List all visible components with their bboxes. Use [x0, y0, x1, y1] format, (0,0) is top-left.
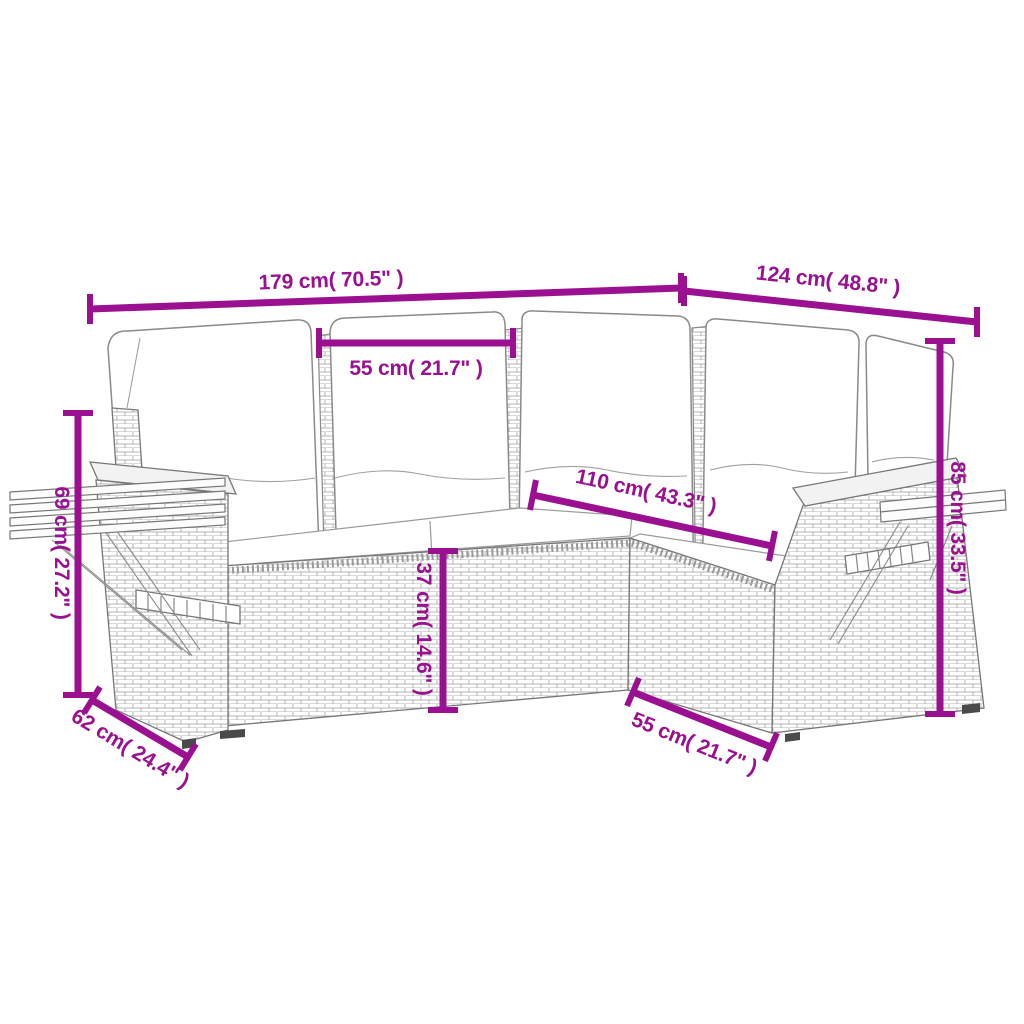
foot: [785, 732, 800, 742]
sofa-base: [222, 538, 775, 733]
dim-label-arm-height: 69 cm( 27.2" ): [49, 486, 73, 619]
dim-label-back-height: 85 cm( 33.5" ): [945, 461, 969, 594]
dimension-diagram: 179 cm( 70.5" ) 124 cm( 48.8" ) 55 cm( 2…: [0, 0, 1024, 1024]
left-arm-post: [112, 408, 142, 470]
dim-label-seat-height: 37 cm( 14.6" ): [411, 562, 435, 695]
dim-label-total-width: 179 cm( 70.5" ): [258, 266, 403, 295]
dim-label-seat-width-top: 55 cm( 21.7" ): [349, 357, 482, 381]
sofa-line-art: [0, 0, 1024, 1024]
